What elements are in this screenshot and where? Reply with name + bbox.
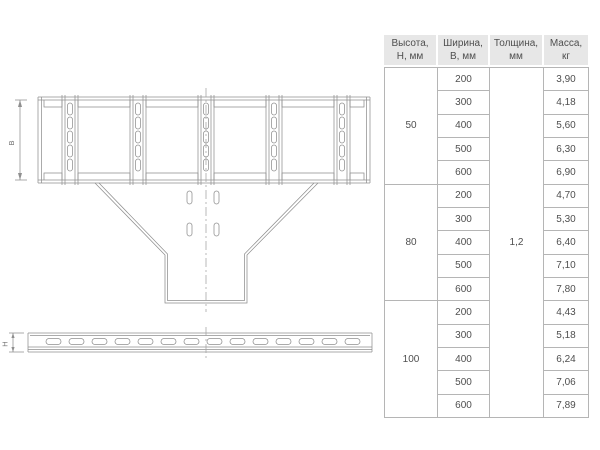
table-row: 50 200 1,2 3,90 [385,68,589,91]
plan-view: В [7,88,370,312]
mass-cell: 6,90 [544,161,589,184]
mass-cell: 5,18 [544,324,589,347]
catalog-page: В [0,0,600,450]
mass-cell: 5,30 [544,207,589,230]
width-cell: 600 [438,161,490,184]
width-cell: 500 [438,371,490,394]
specs-table-body: 50 200 1,2 3,90 3004,18 4005,60 5006,30 … [384,67,589,418]
header-mass: Масса, кг [544,35,588,65]
side-view: Н [1,327,373,358]
mass-cell: 3,90 [544,68,589,91]
table-row: 100 200 4,43 [385,301,589,324]
height-cell: 100 [385,301,438,418]
width-cell: 300 [438,207,490,230]
width-cell: 500 [438,137,490,160]
mass-cell: 4,18 [544,91,589,114]
width-cell: 600 [438,394,490,417]
width-cell: 600 [438,277,490,300]
mass-cell: 5,60 [544,114,589,137]
header-width: Ширина, В, мм [438,35,488,65]
mass-cell: 7,10 [544,254,589,277]
width-dimension: В [7,100,27,180]
width-cell: 200 [438,184,490,207]
mass-cell: 6,24 [544,347,589,370]
height-cell: 50 [385,68,438,185]
width-cell: 200 [438,68,490,91]
mass-cell: 6,30 [544,137,589,160]
dimension-width-label: В [7,140,16,145]
width-cell: 300 [438,324,490,347]
header-height: Высота, Н, мм [384,35,436,65]
table-row: 80 200 4,70 [385,184,589,207]
height-dimension: Н [1,333,25,352]
mass-cell: 4,43 [544,301,589,324]
width-cell: 400 [438,231,490,254]
mass-cell: 7,89 [544,394,589,417]
width-cell: 500 [438,254,490,277]
side-view-slots [46,339,360,345]
mass-cell: 7,80 [544,277,589,300]
rung [62,95,78,185]
width-cell: 200 [438,301,490,324]
rung [334,95,350,185]
thickness-cell: 1,2 [490,68,544,418]
width-cell: 300 [438,91,490,114]
mass-cell: 6,40 [544,231,589,254]
rung [266,95,282,185]
height-cell: 80 [385,184,438,301]
dimension-height-label: Н [1,341,10,346]
branch-outline [95,183,318,303]
specs-table-header: Высота, Н, мм Ширина, В, мм Толщина, мм … [384,35,588,65]
mass-cell: 7,06 [544,371,589,394]
specs-table: Высота, Н, мм Ширина, В, мм Толщина, мм … [384,35,588,418]
width-cell: 400 [438,114,490,137]
branch-slots [187,191,219,236]
rung [130,95,146,185]
mass-cell: 4,70 [544,184,589,207]
header-thickness: Толщина, мм [490,35,542,65]
width-cell: 400 [438,347,490,370]
bottom-flange-steps [44,173,364,180]
